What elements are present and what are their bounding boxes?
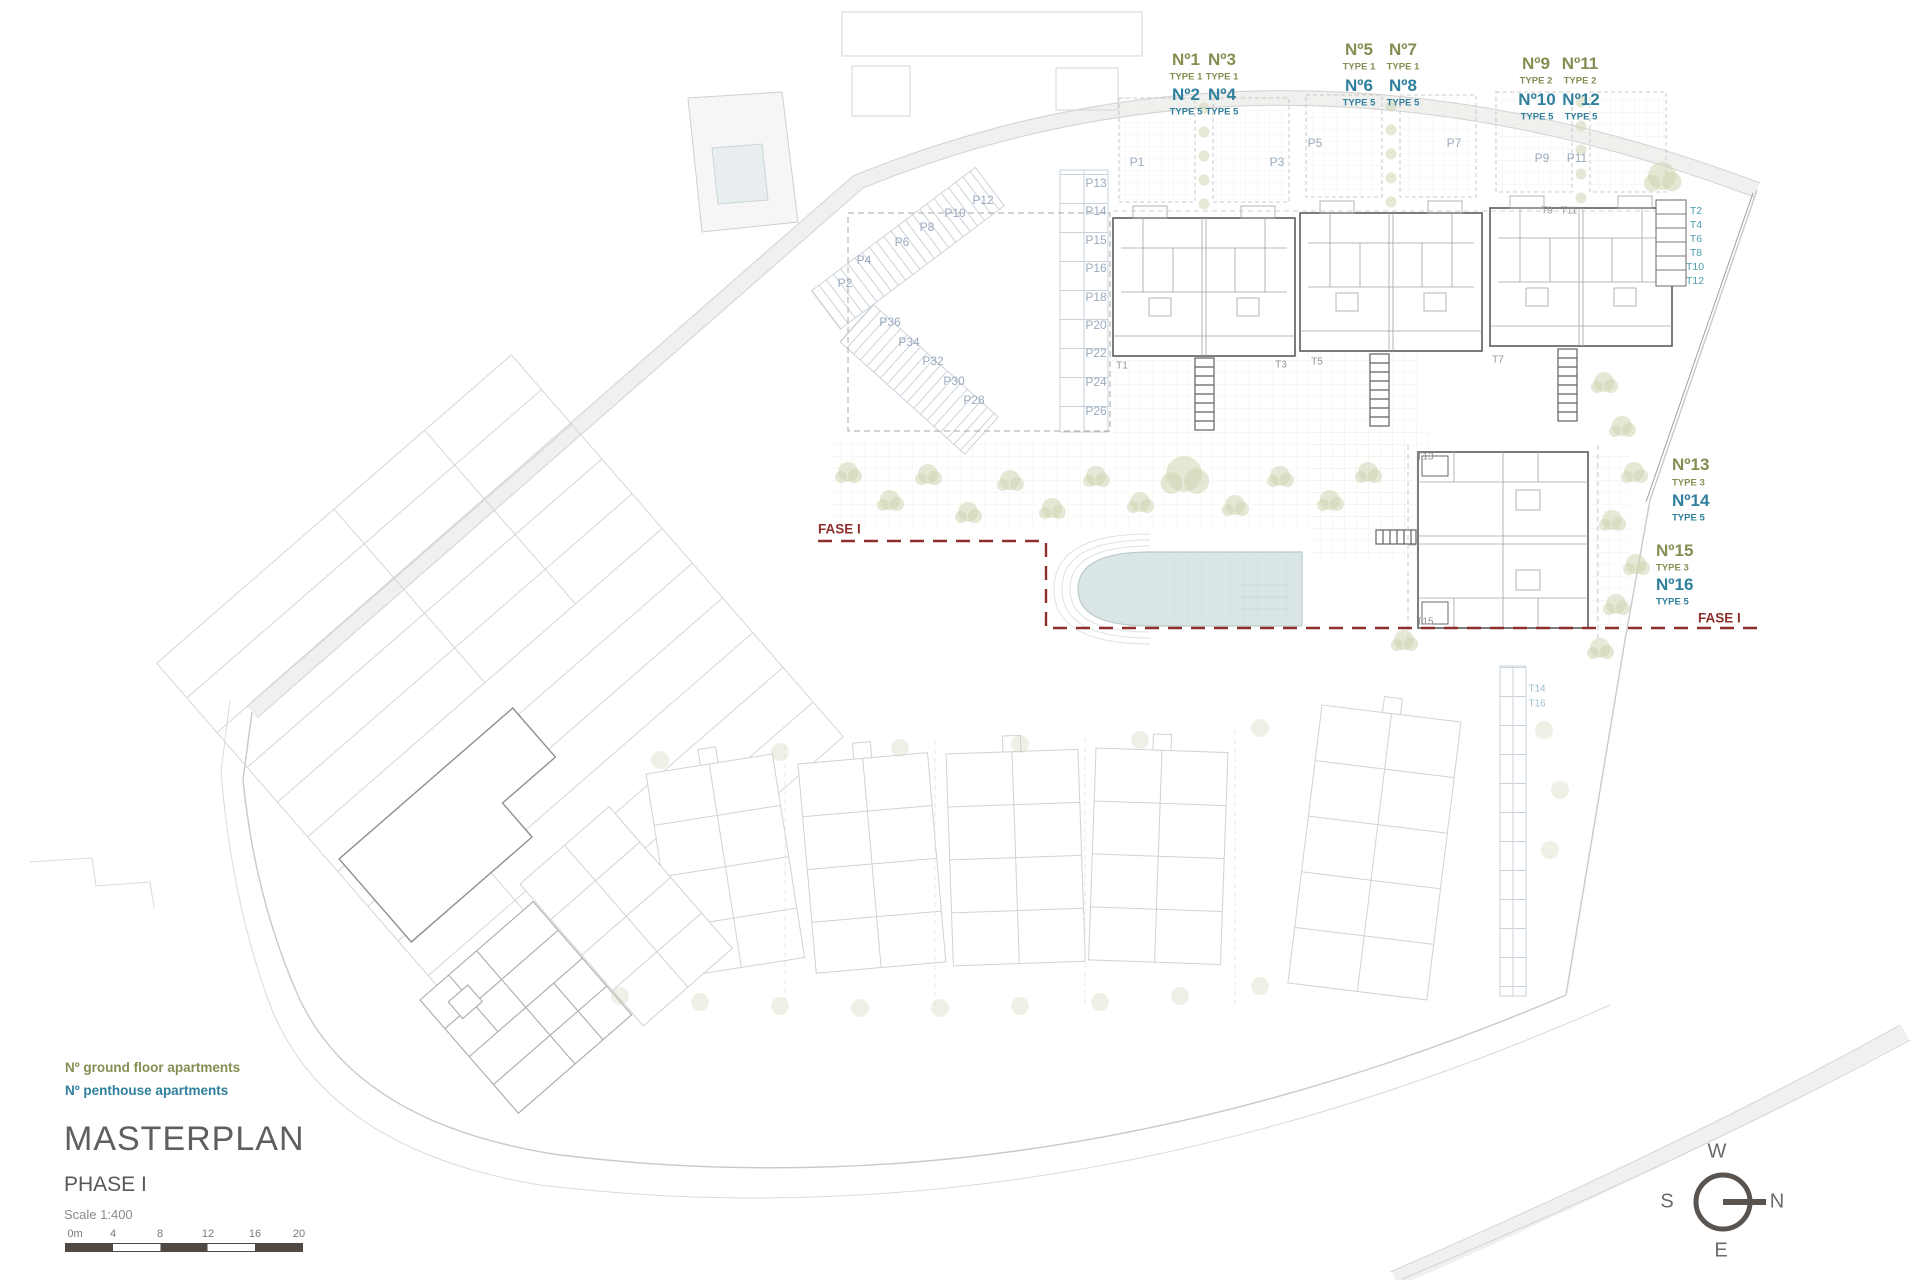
- building-block-units-13-16: [1408, 452, 1588, 628]
- scale-tick-label: 4: [110, 1228, 116, 1240]
- scale-tick-label: 20: [293, 1228, 305, 1240]
- compass-bottom: E: [1714, 1240, 1727, 1263]
- site-plan-drawing: [0, 0, 1920, 1280]
- scale-tick-label: 12: [202, 1228, 214, 1240]
- compass-rose: W N E S: [1650, 1132, 1800, 1272]
- scale-bar-ticks: 0m48121620: [65, 1228, 303, 1242]
- storeroom-block: [1656, 200, 1686, 286]
- masterplan-canvas: Nº1Nº3TYPE 1TYPE 1Nº2Nº4TYPE 5TYPE 5Nº5N…: [0, 0, 1920, 1280]
- phase-2-buildings: [420, 689, 1463, 1113]
- title-block: MASTERPLAN PHASE I Scale 1:400: [64, 1120, 305, 1222]
- page-title: MASTERPLAN: [64, 1120, 305, 1159]
- scale-label: Scale 1:400: [64, 1207, 305, 1222]
- compass-top: W: [1708, 1141, 1727, 1164]
- scale-tick-label: 0m: [67, 1228, 82, 1240]
- compass-left: S: [1660, 1191, 1673, 1214]
- scale-bar-ruler: [65, 1243, 303, 1252]
- legend: Nº ground floor apartments Nº penthouse …: [65, 1056, 240, 1102]
- legend-ground-floor: Nº ground floor apartments: [65, 1056, 240, 1079]
- compass-right: N: [1770, 1191, 1784, 1214]
- scale-tick-label: 8: [157, 1228, 163, 1240]
- scale-tick-label: 16: [249, 1228, 261, 1240]
- phase-subtitle: PHASE I: [64, 1173, 305, 1197]
- legend-penthouse: Nº penthouse apartments: [65, 1079, 240, 1102]
- scale-bar: 0m48121620: [65, 1228, 303, 1254]
